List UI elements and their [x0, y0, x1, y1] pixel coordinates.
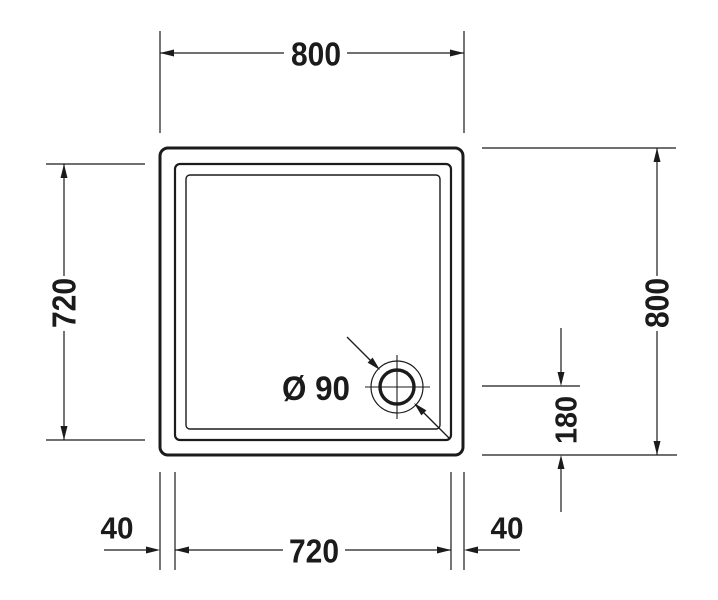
dimension-value-left-inner-height: 720 — [46, 278, 83, 328]
dimension-top-width: 800 — [160, 31, 464, 133]
drain: Ø 90 — [282, 337, 450, 439]
drain-leader-lower-line — [423, 412, 450, 439]
arrowhead-down-icon — [61, 426, 68, 440]
arrowhead-down-icon — [558, 372, 565, 386]
drain-diameter-label: Ø 90 — [282, 370, 350, 408]
dimension-value-drain-offset: 180 — [549, 396, 584, 444]
dimension-drain-offset: 180 — [482, 328, 584, 512]
dimension-value-bottom-left-rim: 40 — [101, 511, 134, 546]
arrowhead-right-icon — [146, 547, 160, 554]
dimension-value-top-width: 800 — [291, 36, 341, 73]
arrowhead-left-icon — [175, 547, 189, 554]
dimension-value-bottom-inner-width: 720 — [289, 533, 339, 570]
arrowhead-right-icon — [450, 50, 464, 57]
shower-tray-plan-drawing: Ø 90 800 720 800 180 — [0, 0, 718, 600]
arrowhead-up-icon — [558, 455, 565, 469]
arrowhead-left-icon — [464, 547, 478, 554]
drain-leader-upper-line — [347, 337, 372, 362]
arrowhead-up-icon — [654, 148, 661, 162]
technical-drawing-canvas: Ø 90 800 720 800 180 — [0, 0, 718, 600]
arrowhead-right-icon — [437, 547, 451, 554]
shower-tray — [160, 148, 463, 455]
dimension-left-inner-height: 720 — [46, 164, 146, 440]
dimension-bottom-group: 720 40 40 — [101, 472, 524, 570]
dimension-value-bottom-right-rim: 40 — [491, 511, 524, 546]
tray-outer-edge — [160, 148, 463, 455]
arrowhead-left-icon — [160, 50, 174, 57]
arrowhead-down-icon — [654, 441, 661, 455]
dimension-value-right-height: 800 — [639, 278, 676, 328]
arrowhead-up-icon — [61, 164, 68, 178]
